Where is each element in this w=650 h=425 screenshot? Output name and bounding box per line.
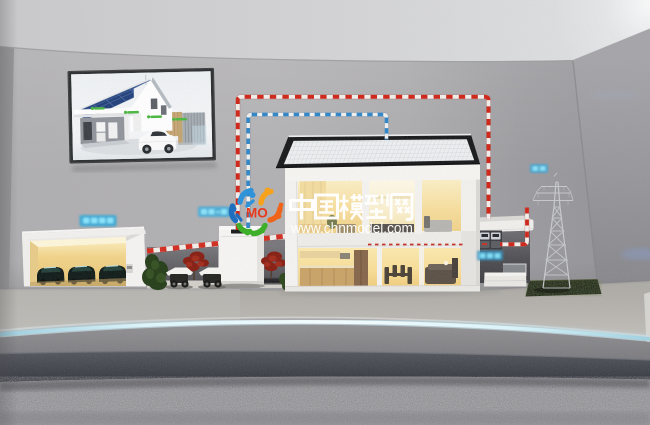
- svg-text:www.chnmodel.com: www.chnmodel.com: [290, 221, 413, 237]
- svg-text:MO: MO: [246, 206, 268, 221]
